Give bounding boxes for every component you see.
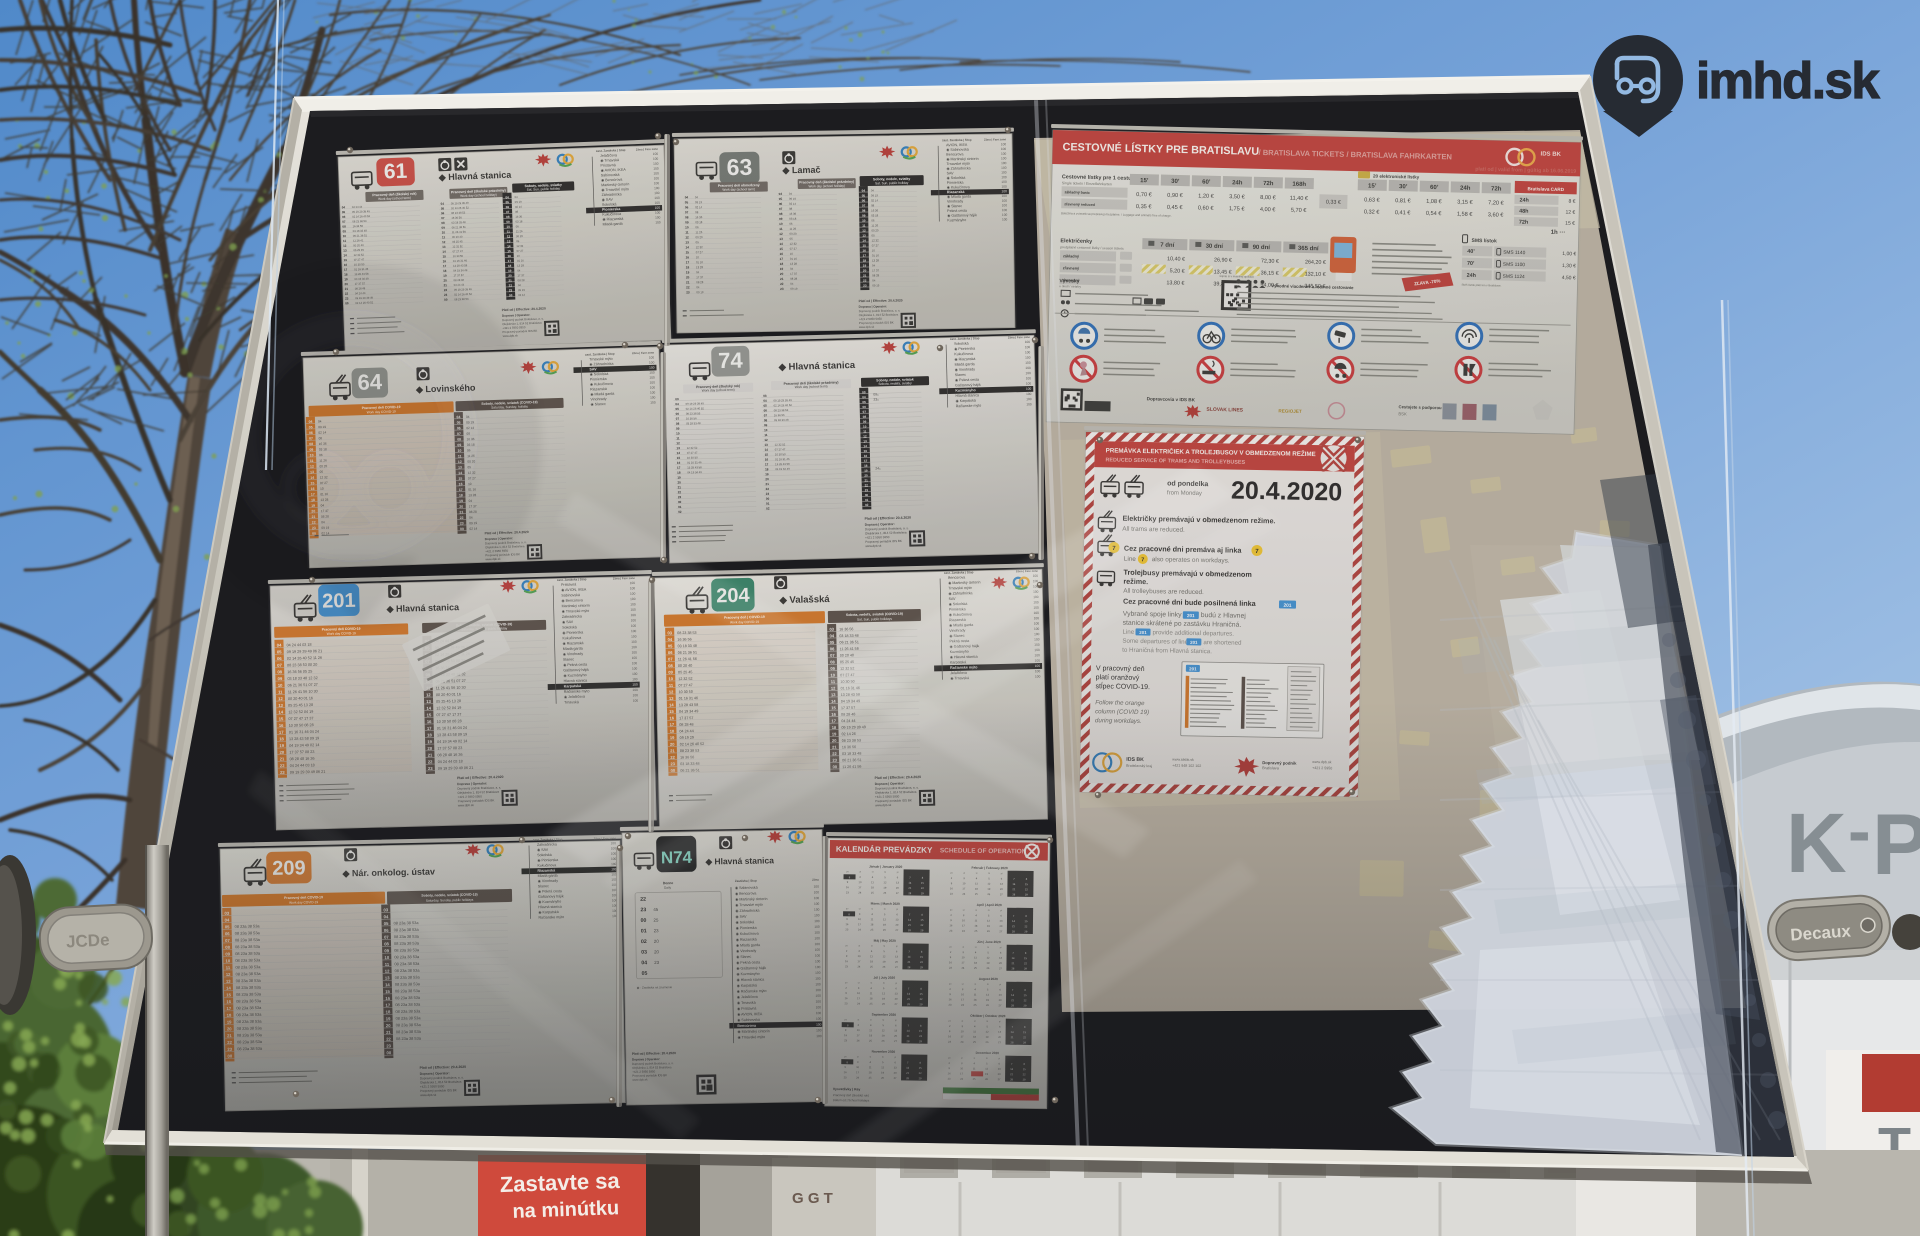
svg-text:imhd.sk: imhd.sk [1696, 52, 1880, 109]
svg-text:na minútku: na minútku [512, 1197, 619, 1223]
svg-text:K: K [1786, 796, 1847, 890]
svg-text:Zastavte sa: Zastavte sa [499, 1168, 620, 1197]
svg-text:JCDe: JCDe [66, 930, 110, 951]
svg-text:-: - [1848, 793, 1871, 869]
svg-text:P: P [1872, 797, 1920, 893]
svg-text:G G T: G G T [792, 1190, 833, 1207]
